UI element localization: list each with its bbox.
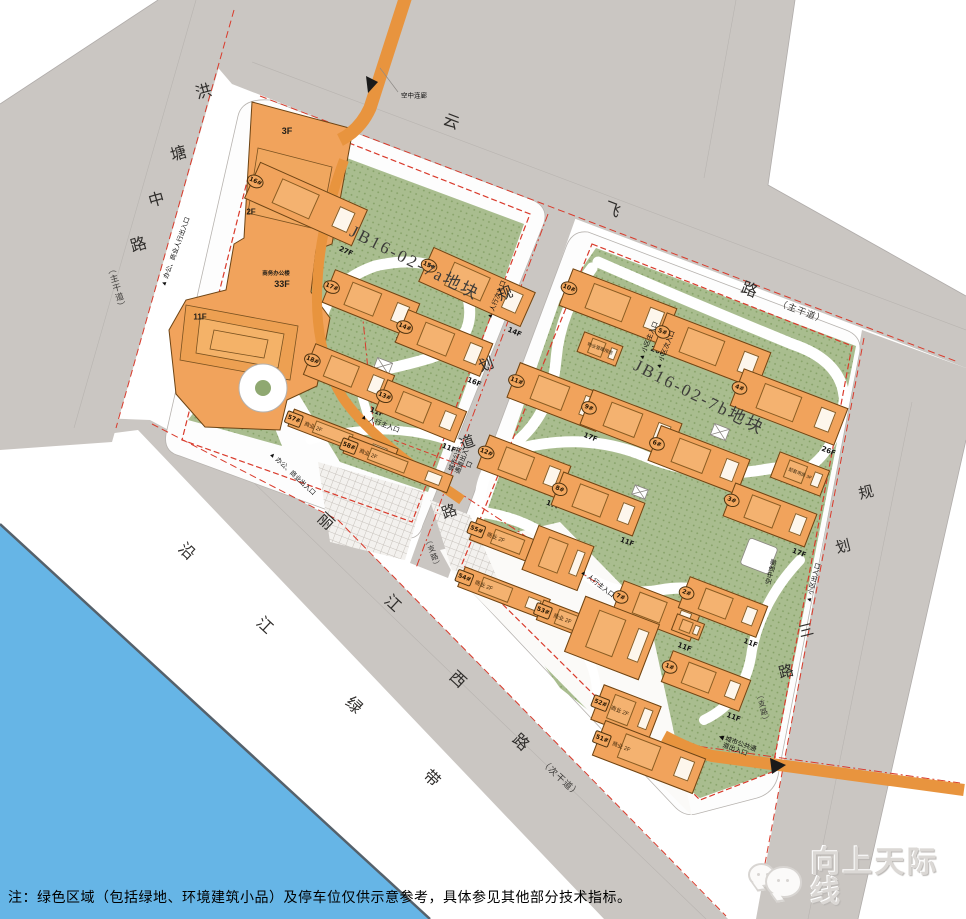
watermark-text: 向上天际线: [810, 848, 966, 908]
office-label-2: 商务办公楼: [262, 269, 290, 277]
entrance-label-10: 空中连廊: [401, 92, 427, 99]
site-plan-canvas: 注：绿色区域（包括绿地、环境建筑小品）及停车位仅供示意参考，具体参见其他部分技术…: [0, 0, 966, 919]
office-label-4: 11F: [193, 313, 206, 322]
watermark: 向上天际线: [748, 848, 966, 908]
chat-bubble-icon: [765, 866, 802, 898]
office-label-3: 33F: [274, 279, 290, 289]
roundabout-tree: [255, 380, 271, 396]
office-label-0: 3F: [282, 126, 293, 136]
office-label-1: 2F: [246, 208, 255, 217]
